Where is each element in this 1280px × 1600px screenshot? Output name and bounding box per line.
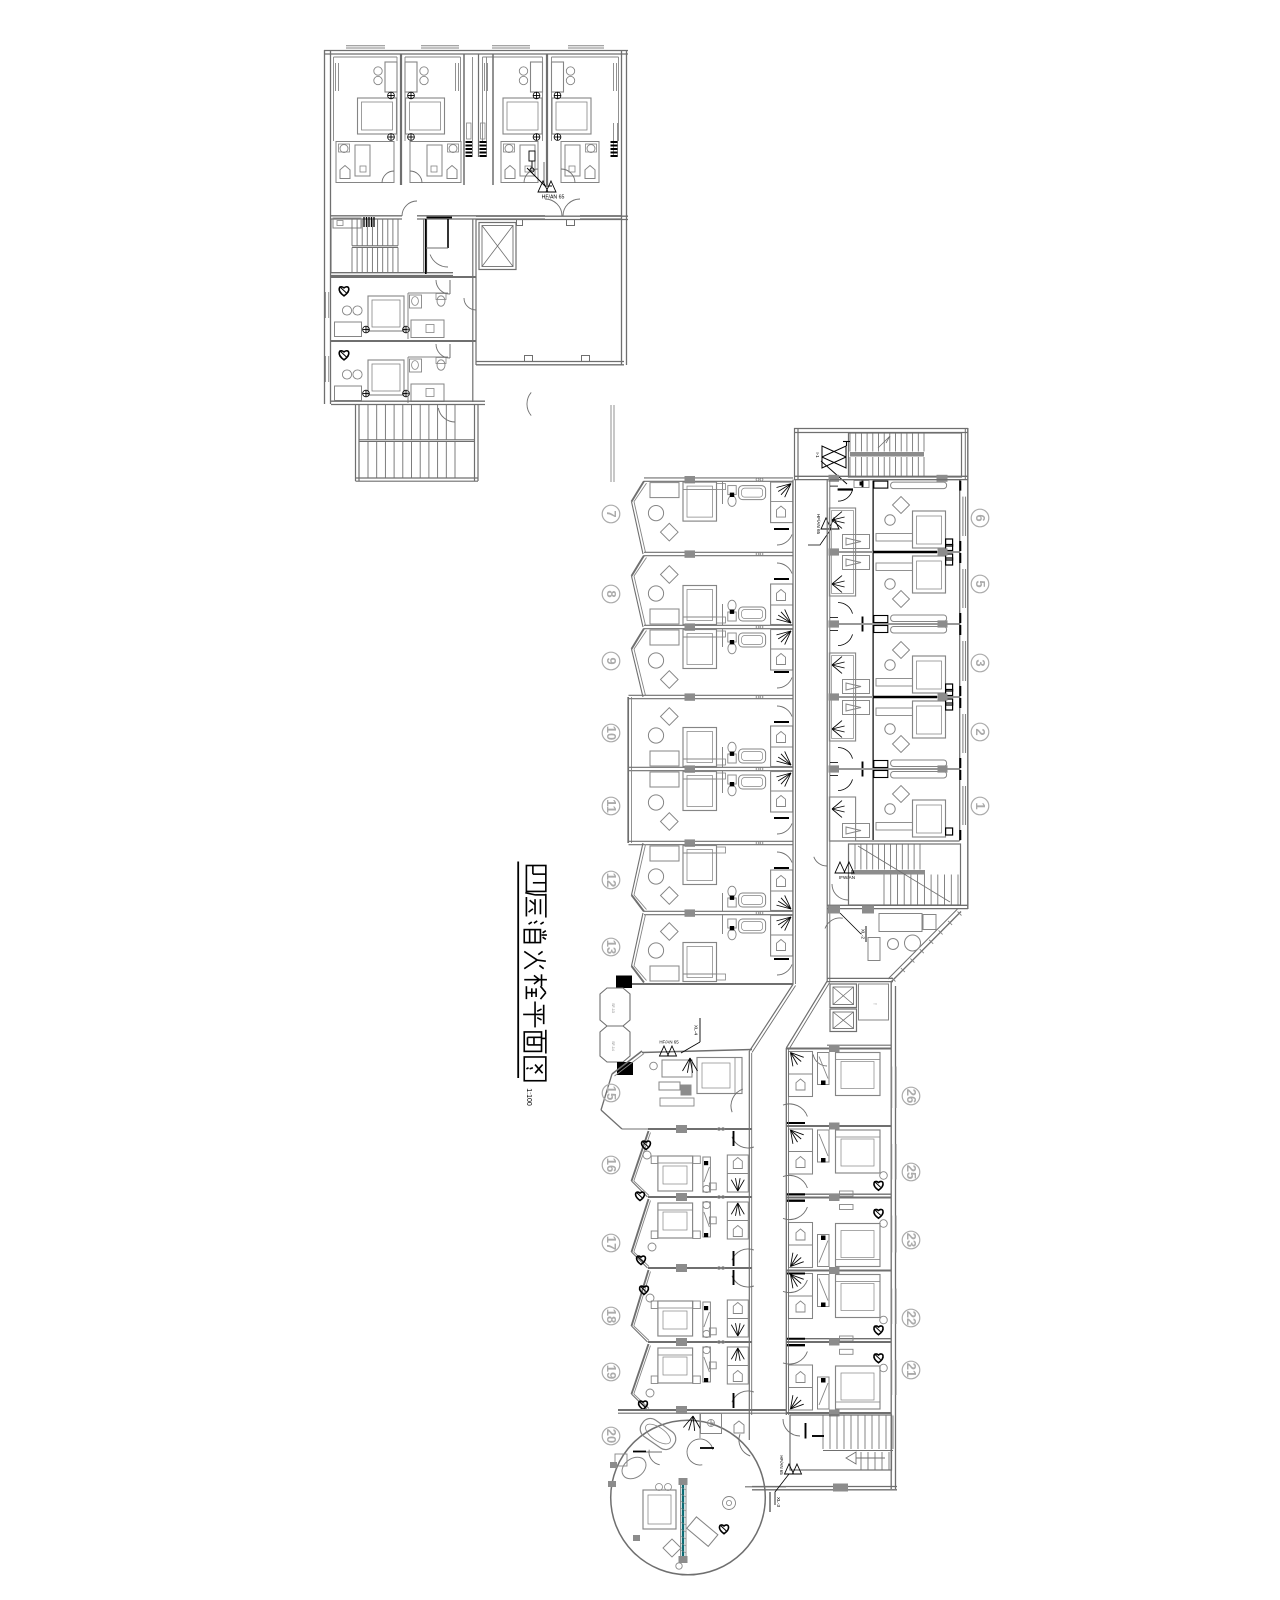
svg-text:22: 22 <box>904 1311 919 1325</box>
svg-text:HF/AN 65: HF/AN 65 <box>779 1455 784 1475</box>
svg-text:1:100: 1:100 <box>525 1088 532 1106</box>
svg-text:HF/AN 65: HF/AN 65 <box>659 1040 679 1045</box>
svg-text:1: 1 <box>973 802 988 809</box>
svg-text:15: 15 <box>604 1086 619 1100</box>
svg-text:SF-14: SF-14 <box>611 1041 615 1051</box>
svg-text:5: 5 <box>973 580 988 587</box>
svg-text:21: 21 <box>904 1363 919 1377</box>
svg-text:2: 2 <box>973 728 988 735</box>
svg-text:I-1: I-1 <box>815 452 820 458</box>
svg-text:8: 8 <box>604 590 619 597</box>
svg-text:XL-4: XL-4 <box>693 1025 699 1035</box>
svg-text:19: 19 <box>604 1365 619 1379</box>
svg-text:25: 25 <box>904 1165 919 1179</box>
svg-text:11: 11 <box>604 799 619 813</box>
svg-text:20: 20 <box>604 1429 619 1443</box>
svg-text:!: ! <box>871 1003 877 1004</box>
svg-text:XL-2: XL-2 <box>860 929 866 939</box>
svg-text:9: 9 <box>604 657 619 664</box>
svg-text:7: 7 <box>604 510 619 517</box>
svg-text:13: 13 <box>604 940 619 954</box>
svg-text:6: 6 <box>973 514 988 521</box>
svg-text:HF/AN 65: HF/AN 65 <box>542 195 565 201</box>
svg-text:IFW/AN: IFW/AN <box>839 875 855 880</box>
svg-text:3: 3 <box>973 659 988 666</box>
svg-text:16: 16 <box>604 1158 619 1172</box>
svg-text:XL-3: XL-3 <box>775 1497 781 1507</box>
svg-text:SF-13: SF-13 <box>611 1003 615 1013</box>
svg-text:17: 17 <box>604 1236 619 1250</box>
svg-text:23: 23 <box>904 1233 919 1247</box>
svg-text:HF/AN 65: HF/AN 65 <box>816 514 821 535</box>
svg-text:10: 10 <box>604 726 619 740</box>
svg-text:12: 12 <box>604 873 619 887</box>
svg-text:18: 18 <box>604 1309 619 1323</box>
svg-text:26: 26 <box>904 1089 919 1103</box>
